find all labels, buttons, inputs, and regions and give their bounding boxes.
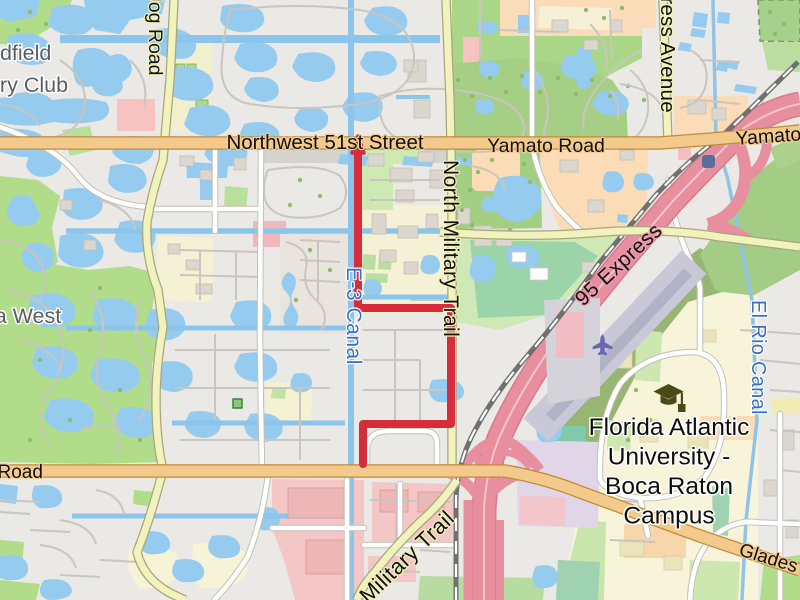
svg-text:University -: University - bbox=[608, 444, 731, 471]
svg-text:odfield: odfield bbox=[0, 41, 51, 65]
svg-text:Glades Road: Glades Road bbox=[0, 462, 43, 483]
svg-text:Yamato Road: Yamato Road bbox=[487, 135, 605, 157]
svg-text:oca West: oca West bbox=[0, 304, 61, 328]
svg-text:ntry Club: ntry Club bbox=[0, 73, 68, 97]
svg-text:Jog Road: Jog Road bbox=[144, 0, 166, 75]
svg-text:Boca Raton: Boca Raton bbox=[605, 473, 733, 500]
svg-text:Campus: Campus bbox=[623, 503, 714, 530]
svg-text:Northwest 51st Street: Northwest 51st Street bbox=[226, 131, 423, 154]
svg-text:Florida Atlantic: Florida Atlantic bbox=[589, 414, 750, 441]
svg-text:North Military Trail: North Military Trail bbox=[439, 160, 462, 337]
svg-text:Congress Avenue: Congress Avenue bbox=[656, 0, 679, 113]
svg-text:El Rio Canal: El Rio Canal bbox=[747, 300, 769, 415]
svg-text:E-3 Canal: E-3 Canal bbox=[342, 267, 365, 365]
